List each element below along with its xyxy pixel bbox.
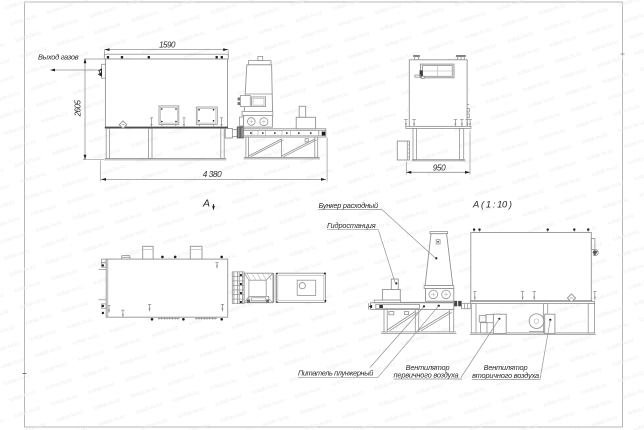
svg-text:Выход газов: Выход газов <box>38 53 79 62</box>
svg-text:1590: 1590 <box>159 41 176 50</box>
svg-text:А ( 1 : 10 ): А ( 1 : 10 ) <box>472 200 512 210</box>
svg-text:2605: 2605 <box>74 100 83 118</box>
svg-text:Бункер расходный: Бункер расходный <box>319 201 378 210</box>
svg-text:Гидростанция: Гидростанция <box>327 221 376 230</box>
svg-text:Питатель плунжерный: Питатель плунжерный <box>298 369 373 378</box>
svg-text:первичного воздуха: первичного воздуха <box>394 371 459 380</box>
svg-text:4 380: 4 380 <box>203 170 222 179</box>
svg-text:950: 950 <box>433 163 446 172</box>
svg-text:вторичного воздуха: вторичного воздуха <box>472 371 539 380</box>
svg-text:A: A <box>202 198 210 210</box>
